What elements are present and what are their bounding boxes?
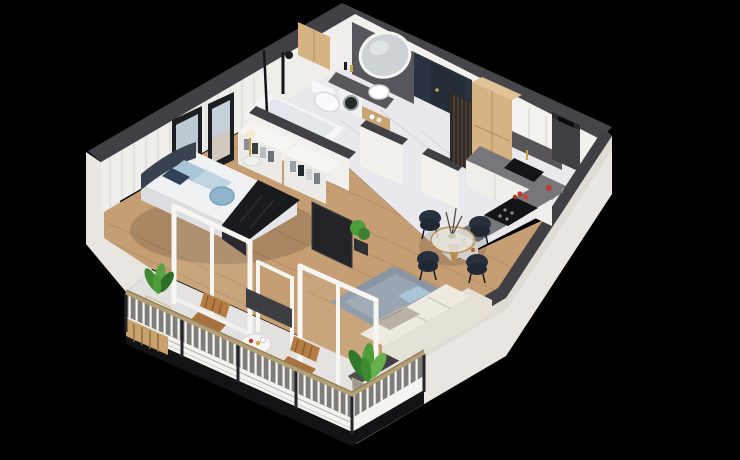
tomatoes-icon [517,191,522,196]
door-handle-icon [435,88,439,92]
round-cushion [210,187,234,205]
vase [448,233,456,238]
vessel-sink [369,85,389,99]
render-canvas [0,0,740,460]
lamp-shade-icon [245,130,255,138]
washer-door-icon [344,96,358,110]
shower-head-icon [285,51,293,59]
kettle-icon [546,185,552,191]
bottle-icon [344,62,347,70]
bottle-gold-icon [350,65,353,72]
macaron-red-icon [249,339,253,343]
macaron-yellow-icon [256,341,260,345]
apartment-floorplan-render [0,0,740,460]
bedside-table [244,156,260,166]
coffee-cup-icon [260,337,265,342]
